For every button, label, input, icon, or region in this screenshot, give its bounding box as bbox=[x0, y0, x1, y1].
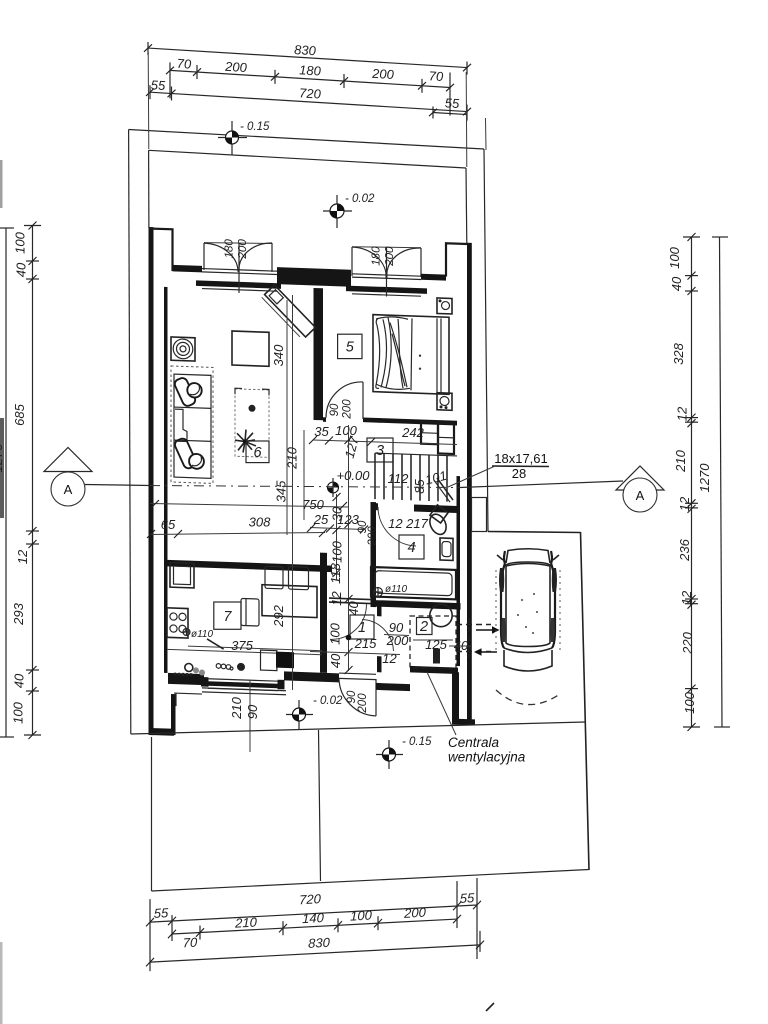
svg-text:236: 236 bbox=[677, 538, 692, 561]
svg-text:A: A bbox=[636, 488, 645, 503]
svg-text:720: 720 bbox=[299, 85, 321, 101]
svg-text:ø110: ø110 bbox=[191, 629, 213, 640]
svg-text:830: 830 bbox=[294, 42, 316, 58]
svg-text:308: 308 bbox=[249, 515, 271, 530]
svg-text:200: 200 bbox=[384, 246, 396, 267]
svg-text:12: 12 bbox=[677, 496, 692, 511]
svg-text:292: 292 bbox=[271, 604, 286, 627]
svg-text:55: 55 bbox=[151, 77, 166, 93]
svg-text:200: 200 bbox=[237, 238, 249, 259]
svg-text:A: A bbox=[64, 482, 73, 497]
svg-text:Centrala: Centrala bbox=[448, 735, 500, 750]
svg-text:200: 200 bbox=[367, 526, 379, 547]
svg-text:12: 12 bbox=[679, 590, 694, 605]
svg-text:100: 100 bbox=[667, 246, 682, 268]
svg-text:685: 685 bbox=[12, 403, 27, 425]
svg-text:7: 7 bbox=[223, 609, 232, 625]
svg-text:200: 200 bbox=[403, 905, 426, 921]
svg-text:100: 100 bbox=[328, 622, 343, 644]
svg-text:65: 65 bbox=[161, 517, 176, 532]
svg-text:55: 55 bbox=[154, 905, 169, 921]
svg-text:100: 100 bbox=[330, 540, 345, 562]
svg-text:40: 40 bbox=[346, 601, 361, 616]
svg-text:- 0.15: - 0.15 bbox=[402, 736, 432, 748]
svg-text:200: 200 bbox=[342, 399, 354, 420]
svg-text:220: 220 bbox=[680, 631, 695, 654]
svg-text:40: 40 bbox=[669, 276, 684, 291]
svg-text:18x17,61: 18x17,61 bbox=[494, 451, 548, 466]
svg-text:180: 180 bbox=[371, 246, 383, 266]
svg-text:40: 40 bbox=[14, 262, 29, 277]
svg-text:750: 750 bbox=[302, 497, 324, 512]
svg-text:720: 720 bbox=[299, 891, 321, 907]
svg-text:12: 12 bbox=[329, 591, 344, 606]
svg-text:30: 30 bbox=[330, 506, 345, 521]
svg-text:293: 293 bbox=[11, 602, 26, 625]
svg-text:35: 35 bbox=[314, 424, 329, 439]
svg-text:wentylacyjna: wentylacyjna bbox=[448, 750, 526, 765]
svg-text:180: 180 bbox=[224, 238, 236, 258]
svg-text:210: 210 bbox=[234, 915, 257, 931]
svg-text:345: 345 bbox=[274, 480, 289, 502]
svg-text:375: 375 bbox=[231, 638, 253, 653]
svg-text:12 217: 12 217 bbox=[388, 516, 429, 531]
svg-text:40: 40 bbox=[12, 673, 27, 688]
svg-text:140: 140 bbox=[302, 910, 324, 926]
svg-text:100: 100 bbox=[682, 691, 697, 713]
svg-text:70: 70 bbox=[183, 935, 198, 951]
svg-text:28: 28 bbox=[512, 466, 526, 481]
svg-text:328: 328 bbox=[671, 342, 686, 364]
svg-text:210: 210 bbox=[673, 449, 688, 472]
svg-text:1270: 1270 bbox=[697, 463, 712, 493]
svg-text:200: 200 bbox=[224, 59, 247, 75]
svg-text:40: 40 bbox=[328, 653, 343, 668]
svg-text:1: 1 bbox=[358, 620, 366, 636]
svg-text:40: 40 bbox=[454, 638, 469, 653]
svg-text:25: 25 bbox=[313, 512, 329, 527]
svg-text:2: 2 bbox=[419, 619, 428, 635]
svg-text:12: 12 bbox=[675, 406, 690, 421]
svg-text:100: 100 bbox=[350, 907, 372, 923]
svg-text:4: 4 bbox=[407, 540, 415, 556]
svg-text:90: 90 bbox=[329, 403, 341, 416]
svg-text:55: 55 bbox=[445, 95, 460, 111]
svg-text:242: 242 bbox=[401, 425, 424, 440]
svg-text:200: 200 bbox=[371, 66, 394, 82]
svg-text:55: 55 bbox=[460, 890, 475, 906]
svg-text:+0.00: +0.00 bbox=[337, 468, 371, 483]
svg-text:- 0.15: - 0.15 bbox=[240, 121, 270, 133]
svg-text:70: 70 bbox=[177, 56, 192, 72]
svg-text:340: 340 bbox=[271, 344, 286, 366]
svg-text:ø110: ø110 bbox=[385, 584, 407, 595]
svg-text:12: 12 bbox=[382, 651, 397, 666]
svg-text:3: 3 bbox=[376, 443, 384, 459]
svg-text:125: 125 bbox=[425, 637, 447, 652]
svg-text:100: 100 bbox=[11, 701, 26, 723]
svg-text:180: 180 bbox=[299, 62, 321, 78]
svg-text:90: 90 bbox=[245, 704, 260, 719]
svg-text:215: 215 bbox=[354, 636, 377, 651]
svg-text:118: 118 bbox=[328, 562, 343, 583]
svg-text:- 0.02: - 0.02 bbox=[345, 193, 375, 205]
svg-text:5: 5 bbox=[346, 340, 355, 356]
svg-text:6: 6 bbox=[253, 445, 262, 461]
svg-text:200: 200 bbox=[386, 633, 409, 648]
svg-text:112: 112 bbox=[388, 471, 409, 486]
svg-text:830: 830 bbox=[308, 935, 330, 951]
svg-text:- 0.02: - 0.02 bbox=[313, 695, 343, 707]
svg-text:200: 200 bbox=[357, 693, 369, 714]
svg-text:70: 70 bbox=[429, 68, 444, 84]
svg-text:100: 100 bbox=[13, 231, 28, 253]
svg-text:12: 12 bbox=[15, 549, 30, 564]
svg-text:1270: 1270 bbox=[0, 443, 5, 473]
svg-text:210: 210 bbox=[229, 696, 244, 719]
